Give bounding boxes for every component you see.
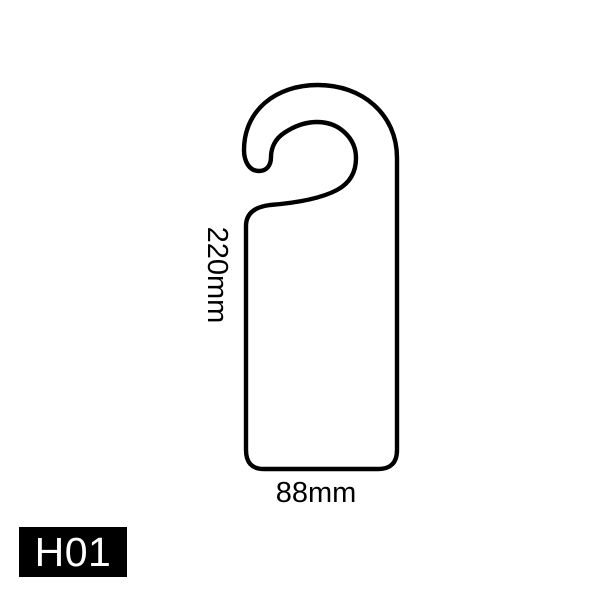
product-code-badge: H01: [19, 527, 127, 577]
product-diagram-canvas: 220mm 88mm H01: [0, 0, 600, 600]
door-hanger-path: [244, 85, 397, 469]
door-hanger-outline: [0, 0, 600, 600]
width-dimension-label: 88mm: [256, 479, 376, 507]
height-dimension-label: 220mm: [203, 225, 231, 325]
product-code-text: H01: [35, 529, 112, 576]
